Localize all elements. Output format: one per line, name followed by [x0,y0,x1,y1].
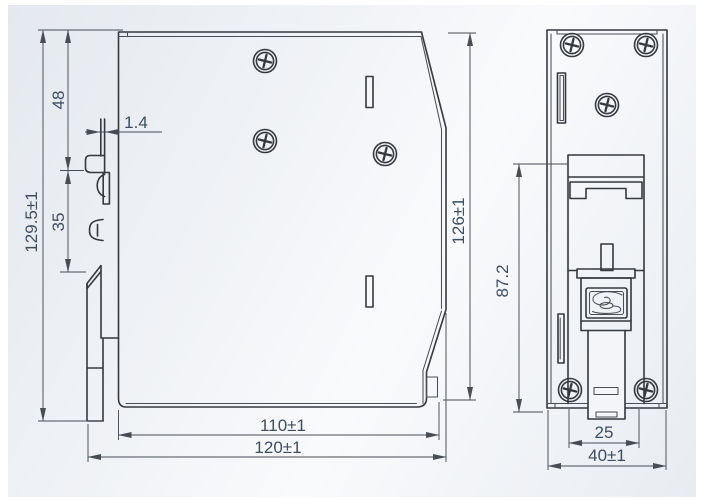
side-view-dimensions: 129.5±1 48 35 1.4 126±1 110±1 120±1 [22,30,476,462]
screw-head [596,94,619,117]
din-clip-slider [87,272,119,422]
dim-label-clip-slot-width: 25 [595,423,614,442]
dim-label-overall-width: 40±1 [588,446,626,465]
clip-slot [103,173,109,205]
extension-lines [513,164,666,470]
side-view [86,32,447,421]
dim-label-clip-region-height: 87.2 [493,264,512,297]
rear-view [547,30,667,419]
screw-head [559,379,582,402]
screw-head [561,34,584,57]
screw-head [635,34,658,57]
screw-head [254,130,277,153]
enclosure-side-outline [119,32,447,407]
drawing-canvas: 129.5±1 48 35 1.4 126±1 110±1 120±1 [0,0,701,500]
clip-steps [581,321,631,331]
dim-label-case-height: 126±1 [449,197,468,244]
vent-slot [558,73,566,123]
rear-view-dimensions: 87.2 25 40±1 [493,164,666,470]
din-rail-guide [570,182,642,199]
dim-label-overall-depth: 120±1 [254,438,301,457]
din-clip-spring [593,292,623,314]
dimension-lines [43,30,470,457]
dimension-drawing: 129.5±1 48 35 1.4 126±1 110±1 120±1 [0,0,701,500]
clip-plate-edge [101,119,105,173]
screw-head [374,143,397,166]
bottom-mount-tab [427,377,438,397]
vent-slot [366,77,373,108]
dim-label-plate-thickness: 1.4 [124,113,148,132]
din-clip-side [86,119,119,421]
din-clip-tongue [588,331,625,420]
dim-label-case-depth: 110±1 [260,416,306,435]
sheet-metal-inner-edges [119,32,442,404]
din-clip-lower-hook [87,266,101,289]
clip-stem [601,244,613,271]
dim-label-total-height: 129.5±1 [22,191,41,252]
din-clip-upper-hook [86,156,105,173]
dim-label-top-to-rail: 48 [49,91,68,110]
din-clip-release-button [90,220,104,241]
din-clip-rear [577,244,635,419]
screw-head [254,50,277,73]
screw-head [635,379,658,402]
dim-label-rail-height: 35 [49,213,68,232]
vent-slot [558,314,564,363]
vent-slot [366,276,373,307]
